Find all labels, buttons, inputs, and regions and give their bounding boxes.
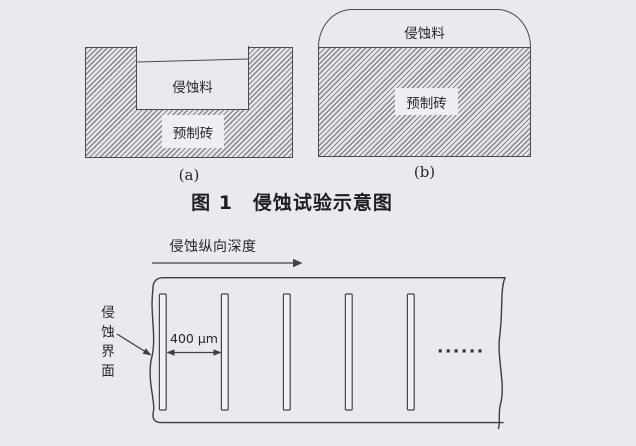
panel-a-sublabel: (a) xyxy=(85,166,293,184)
continuation-dots: ······ xyxy=(437,342,483,362)
panel-b-brick-label-patch: 预制砖 xyxy=(395,88,458,115)
slot-3 xyxy=(283,294,290,410)
panel-b-corrosive-material-label: 侵蚀料 xyxy=(318,22,531,42)
panel-a-brick-label: 预制砖 xyxy=(173,122,214,142)
panel-a-corrosive-material-label: 侵蚀料 xyxy=(136,76,249,96)
panel-b-sublabel: (b) xyxy=(318,163,531,181)
scanned-figure-page: 侵蚀料 预制砖 (a) 侵蚀料 预制砖 (b) 图 1 侵蚀试验示意图 xyxy=(0,0,636,446)
measurement-slots xyxy=(159,294,414,410)
figure1-caption: 图 1 侵蚀试验示意图 xyxy=(112,188,472,215)
spacing-dimension-arrow xyxy=(167,349,222,356)
depth-direction-label: 侵蚀纵向深度 xyxy=(148,236,278,256)
slot-spacing-label: 400 μm xyxy=(162,331,226,346)
erosion-interface-label: 侵蚀界面 xyxy=(96,305,116,397)
slot-1 xyxy=(159,294,166,410)
slot-5 xyxy=(407,294,414,410)
panel-a-brick-label-patch: 预制砖 xyxy=(162,115,224,148)
slot-4 xyxy=(345,294,352,410)
slot-2 xyxy=(221,294,228,410)
panel-b-brick-label: 预制砖 xyxy=(406,92,447,112)
depth-direction-arrow xyxy=(152,259,303,267)
interface-leader-arrow xyxy=(117,334,152,356)
